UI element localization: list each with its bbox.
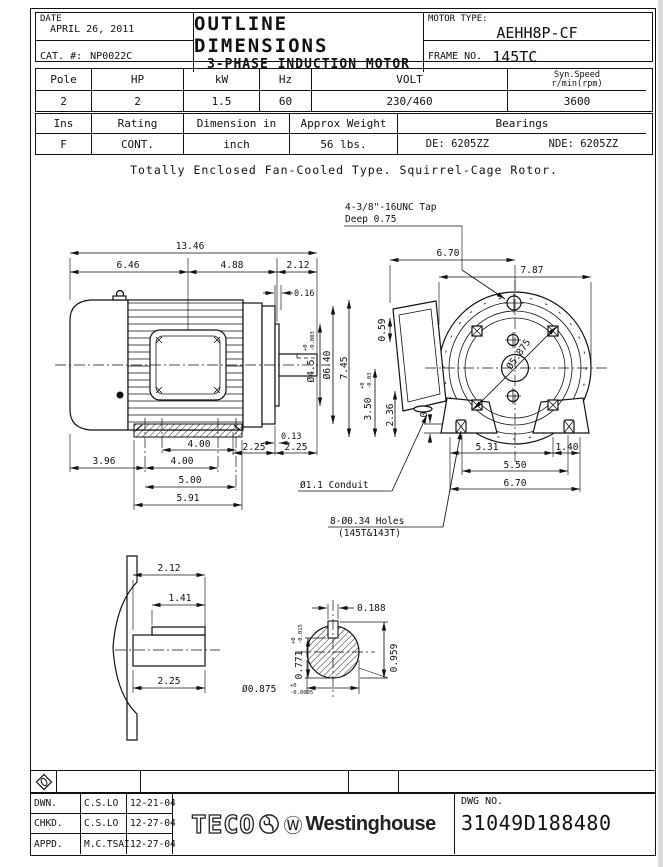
value-hz: 60 [260, 91, 312, 111]
header-block: DATE APRIL 26, 2011 CAT. #: NP0022C OUTL… [35, 12, 653, 62]
revision-cell-1 [57, 771, 141, 792]
approved-name: M.C.TSAI [81, 834, 127, 854]
scan-edge [658, 0, 663, 867]
drawing-sheet: DATE APRIL 26, 2011 CAT. #: NP0022C OUTL… [0, 0, 663, 867]
dim-key-top-height: 0.959 [389, 643, 400, 672]
value-kw: 1.5 [184, 91, 260, 111]
dim-pilot-tol-hi: +0 [303, 344, 309, 351]
checked-date: 12-27-04 [127, 814, 173, 834]
westinghouse-w-icon: Ⓦ [283, 811, 302, 838]
frame-value: 145TC [492, 48, 537, 66]
tap-note-line2: Deep 0.75 [345, 214, 396, 225]
dim-key-overall: 2.12 [158, 563, 181, 574]
dim-box-center-height: 2.36 [385, 403, 396, 426]
dim-pilot-tol-lo: -0.003 [310, 331, 316, 351]
dim-foot-width: 6.70 [504, 478, 527, 489]
header-date-box: DATE APRIL 26, 2011 CAT. #: NP0022C [36, 13, 194, 72]
revision-cell-3 [349, 771, 399, 792]
drawn-date: 12-21-04 [127, 794, 173, 814]
teco-logo-text: TECO [191, 810, 255, 839]
teco-swirl-icon [258, 813, 280, 835]
dim-shaft-dia-tol-hi: +0 [290, 683, 297, 689]
value-speed: 3600 [508, 91, 646, 111]
dim-keyseat-depth: 0.771 [294, 650, 305, 679]
value-ins: F [36, 134, 92, 154]
col-header-bearings: Bearings [398, 114, 646, 134]
dim-box-to-center: 6.70 [437, 248, 460, 259]
outline-drawing: 13.46 6.46 4.88 2.12 0.16 Ø4.5 +0 -0.003… [30, 185, 656, 770]
dim-foot-span-c: 5.00 [179, 475, 202, 486]
dim-flange-lip: 0.13 [281, 432, 301, 442]
value-volt: 230/460 [312, 91, 508, 111]
dim-shaft-height: 3.50 [363, 397, 374, 420]
col-header-hp: HP [92, 69, 184, 91]
revision-strip [30, 770, 656, 793]
dim-overall-length: 13.46 [176, 241, 205, 252]
company-logo: TECO Ⓦ Westinghouse [173, 794, 455, 854]
header-type-box: MOTOR TYPE: AEHH8P-CF FRAME NO. 145TC [424, 13, 650, 72]
dim-shaft-len-a: 2.25 [243, 442, 266, 453]
checked-label: CHKD. [31, 814, 81, 834]
revision-cell-2 [141, 771, 349, 792]
value-rating: CONT. [92, 134, 184, 154]
checked-name: C.S.LO [81, 814, 127, 834]
revision-diamond-icon [35, 773, 53, 791]
col-header-hz: Hz [260, 69, 312, 91]
col-header-rating: Rating [92, 114, 184, 134]
dim-pilot-dia: Ø4.5 [306, 360, 317, 383]
holes-note-line2: (145T&143T) [338, 528, 401, 539]
spec-table-mechanical: Ins Rating Dimension in Approx Weight Be… [35, 113, 653, 155]
value-pole: 2 [36, 91, 92, 111]
dim-mid-length: 4.88 [221, 260, 244, 271]
dim-keyseat-tol-hi: +0 [291, 637, 297, 644]
drawn-label: DWN. [31, 794, 81, 814]
tap-note-line1: 4-3/8"-16UNC Tap [345, 202, 437, 213]
value-dimension: inch [184, 134, 290, 154]
front-view: Ø5.875 [393, 280, 610, 462]
dim-foot-span-d: 5.91 [177, 493, 200, 504]
value-hp: 2 [92, 91, 184, 111]
bearing-de: DE: 6205ZZ [426, 138, 489, 150]
col-header-dimension: Dimension in [184, 114, 290, 134]
dim-foot-a: 5.31 [476, 442, 499, 453]
cat-value: NP0022C [90, 51, 132, 62]
dim-foot-b: 1.40 [556, 442, 579, 453]
dim-foot-span-b: 4.00 [171, 456, 194, 467]
dim-rear-length: 6.46 [117, 260, 140, 271]
dim-key-width: 0.188 [357, 603, 386, 614]
holes-note-line1: 8-Ø0.34 Holes [330, 516, 404, 527]
revision-cell-4 [399, 771, 655, 792]
cat-label: CAT. #: [40, 51, 82, 62]
approved-date: 12-27-04 [127, 834, 173, 854]
spec-table-electrical: Pole HP kW Hz VOLT Syn.Speed r/min(rpm) … [35, 68, 653, 112]
dim-box-lip: 0.59 [377, 318, 388, 341]
dim-rear-overhang: 3.96 [93, 456, 116, 467]
header-title-box: OUTLINE DIMENSIONS 3-PHASE INDUCTION MOT… [194, 13, 424, 72]
col-header-speed: Syn.Speed r/min(rpm) [508, 69, 646, 91]
col-header-kw: kW [184, 69, 260, 91]
bearing-nde: NDE: 6205ZZ [549, 138, 619, 150]
dim-foot-span-a: 4.00 [188, 439, 211, 450]
construction-note: Totally Enclosed Fan-Cooled Type. Squirr… [35, 163, 653, 177]
dwg-number-value: 31049D188480 [461, 811, 649, 835]
col-header-weight: Approx Weight [290, 114, 398, 134]
keyseat-side-detail: 2.12 1.41 2.25 [113, 556, 220, 740]
dwg-number-label: DWG NO. [461, 796, 649, 807]
revision-symbol-cell [31, 771, 57, 792]
dim-shaft-dia: Ø0.875 [242, 684, 276, 695]
col-header-ins: Ins [36, 114, 92, 134]
col-header-volt: VOLT [312, 69, 508, 91]
value-bearings: DE: 6205ZZ NDE: 6205ZZ [398, 134, 646, 154]
dim-shaft-len-b: 2.25 [285, 442, 308, 453]
sheet-title: OUTLINE DIMENSIONS [194, 13, 423, 57]
col-header-pole: Pole [36, 69, 92, 91]
shaft-section-detail: 0.188 0.771 +0 -0.015 0.959 Ø0.875 +0 -0… [242, 600, 400, 697]
dim-front-width: 7.87 [521, 265, 544, 276]
motor-type-value: AEHH8P-CF [428, 24, 646, 42]
dim-key-length: 1.41 [169, 593, 192, 604]
dim-shaft-height-tol-hi: +0 [360, 382, 366, 389]
approved-label: APPD. [31, 834, 81, 854]
dim-flange-dia: Ø6.40 [322, 350, 333, 379]
dwg-number-box: DWG NO. 31049D188480 [455, 794, 655, 854]
dim-shaft-dia-tol-lo: -0.0005 [290, 690, 313, 696]
date-label: DATE [40, 14, 189, 24]
motor-type-label: MOTOR TYPE: [428, 14, 646, 24]
dim-keyseat-tol-lo: -0.015 [298, 624, 304, 644]
frame-label: FRAME NO. [428, 52, 482, 62]
dim-overall-height: 7.45 [339, 357, 350, 380]
title-block: DWN. C.S.LO 12-21-04 TECO Ⓦ Westinghouse… [30, 793, 656, 856]
conduit-note: Ø1.1 Conduit [300, 480, 369, 491]
dim-shaft-length: 2.25 [158, 676, 181, 687]
value-weight: 56 lbs. [290, 134, 398, 154]
drawn-name: C.S.LO [81, 794, 127, 814]
dim-shaft-height-tol-lo: -0.03 [367, 372, 373, 389]
date-value: APRIL 26, 2011 [40, 24, 189, 35]
dim-shaft-ext: 2.12 [287, 260, 310, 271]
dim-face-lip: 0.16 [294, 289, 314, 299]
westinghouse-logo-text: Westinghouse [305, 813, 435, 836]
dim-slot-span: 5.50 [504, 460, 527, 471]
